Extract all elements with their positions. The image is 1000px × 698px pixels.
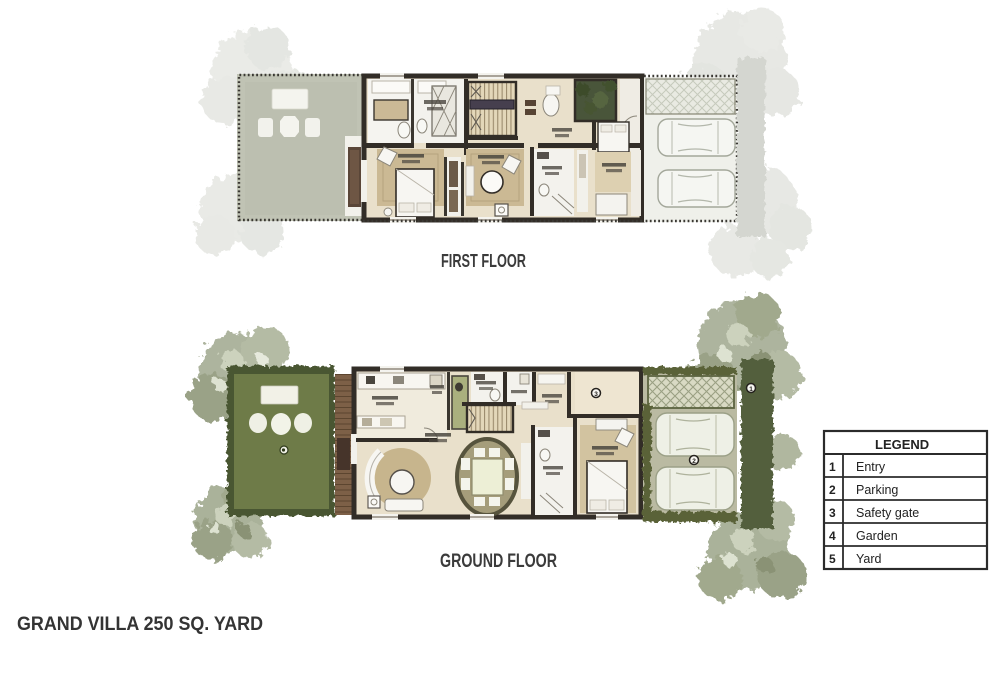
svg-text:2: 2 xyxy=(692,458,696,465)
svg-text:Yard: Yard xyxy=(856,552,882,566)
svg-text:Parking: Parking xyxy=(856,483,898,497)
svg-text:1: 1 xyxy=(749,386,753,393)
svg-text:4: 4 xyxy=(829,529,836,543)
svg-text:3: 3 xyxy=(594,391,598,398)
svg-text:Entry: Entry xyxy=(856,460,886,474)
svg-text:1: 1 xyxy=(829,460,836,474)
svg-text:3: 3 xyxy=(829,506,836,520)
svg-text:2: 2 xyxy=(829,483,836,497)
svg-text:Safety gate: Safety gate xyxy=(856,506,919,520)
svg-text:GROUND FLOOR: GROUND FLOOR xyxy=(440,551,557,572)
svg-text:5: 5 xyxy=(829,552,836,566)
svg-text:Garden: Garden xyxy=(856,529,898,543)
svg-text:GRAND VILLA 250 SQ. YARD: GRAND VILLA 250 SQ. YARD xyxy=(17,613,263,635)
svg-text:FIRST FLOOR: FIRST FLOOR xyxy=(441,251,526,271)
svg-text:LEGEND: LEGEND xyxy=(875,437,929,452)
